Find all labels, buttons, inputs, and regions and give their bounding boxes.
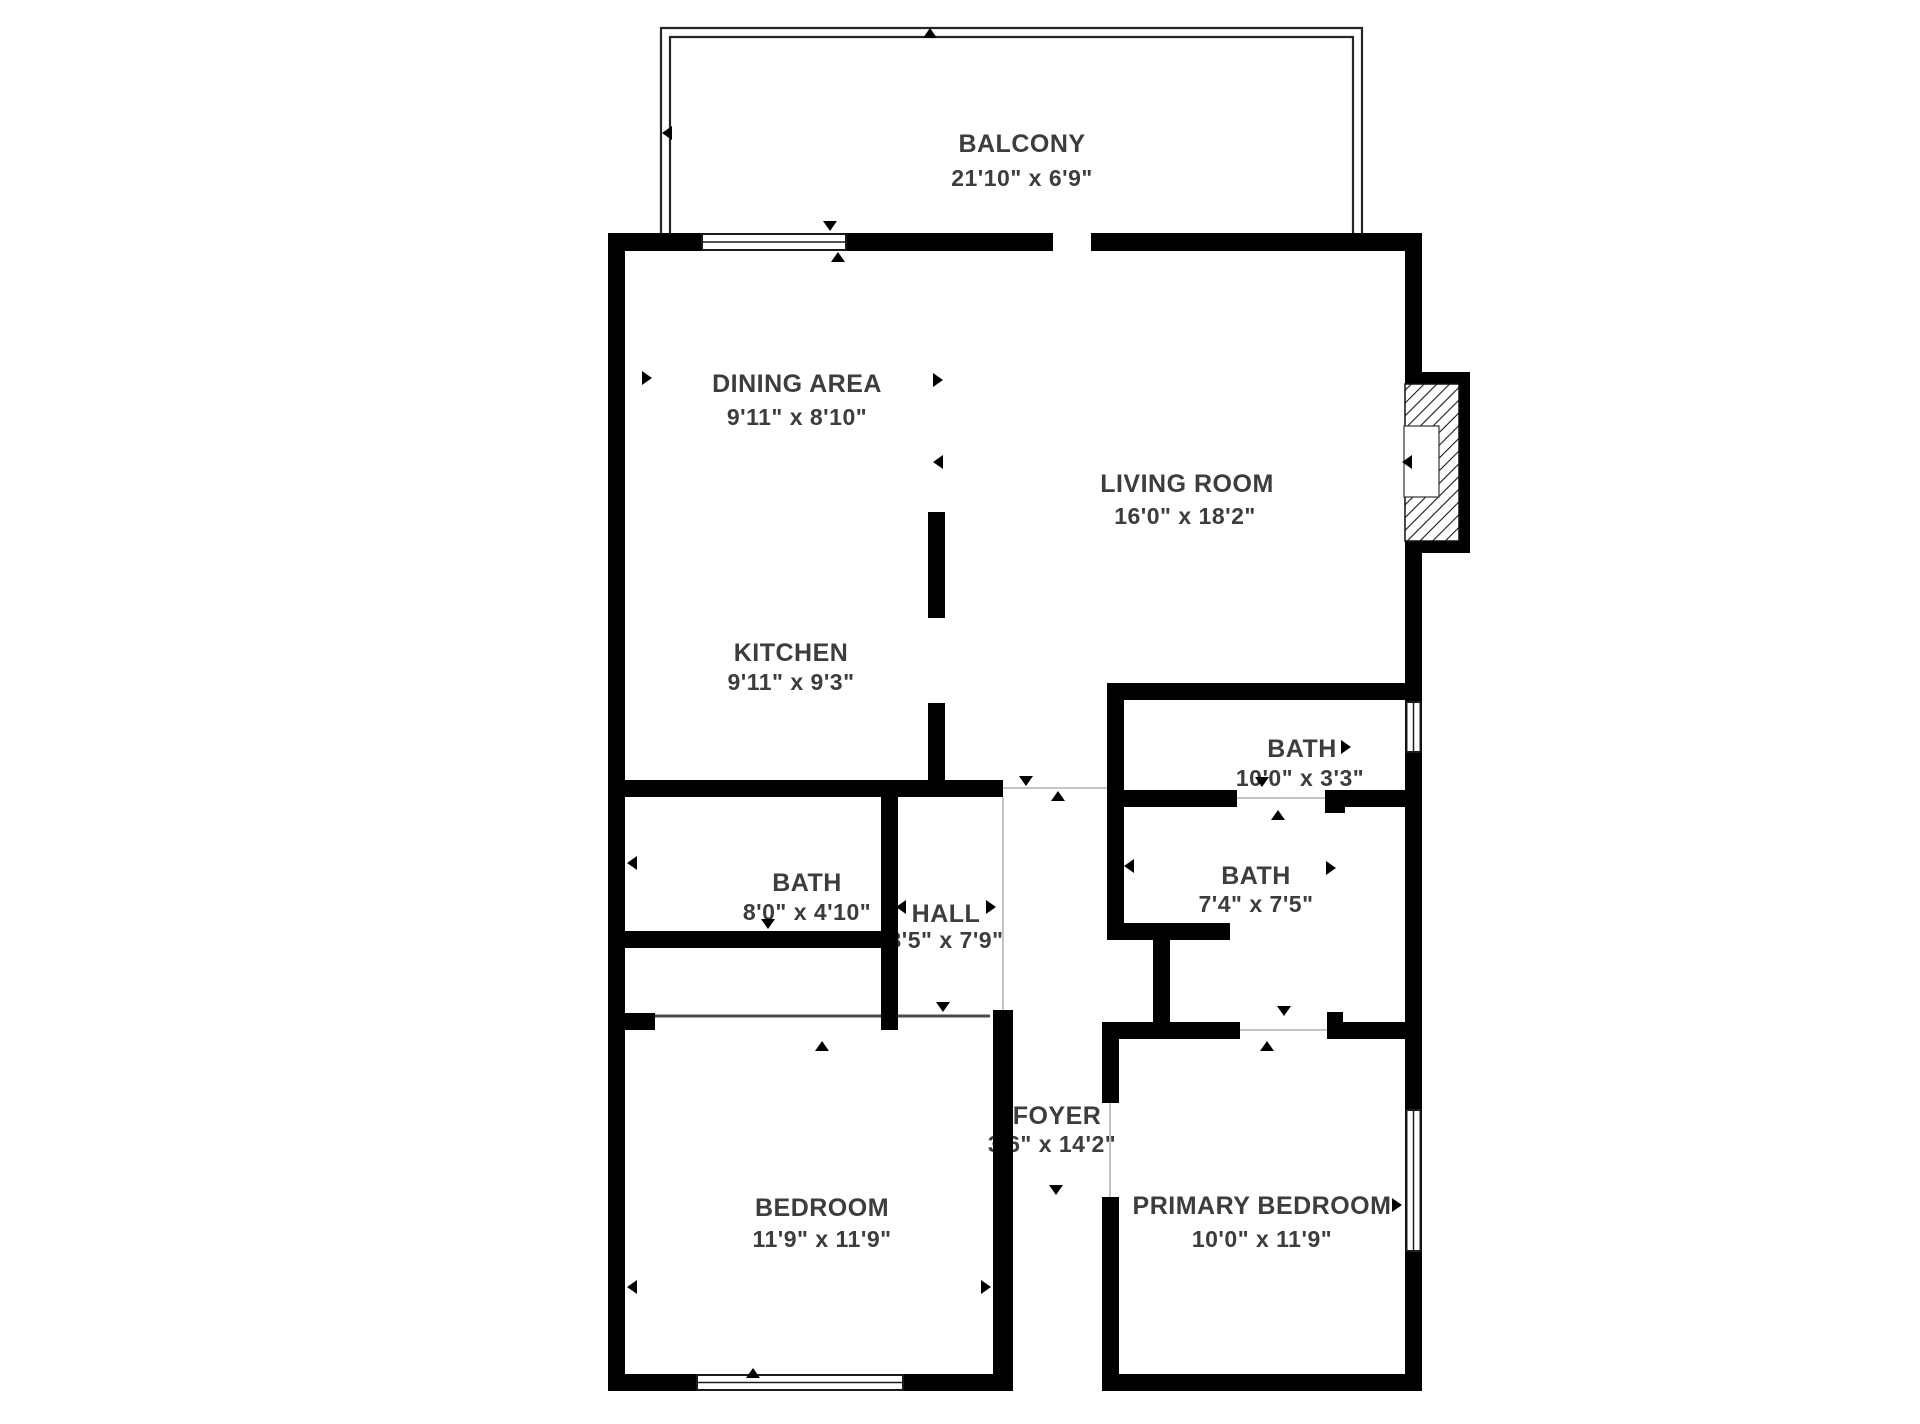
balcony-door-opening	[1053, 230, 1091, 254]
room-label-hall: HALL	[912, 900, 981, 928]
room-dims-balcony: 21'10" x 6'9"	[951, 165, 1093, 191]
chimney-bottom	[1422, 541, 1470, 553]
fireplace	[1404, 384, 1459, 541]
wall-left	[608, 233, 625, 1391]
room-label-living: LIVING ROOM	[1100, 470, 1274, 498]
wall-bath-left-vertical	[1107, 683, 1124, 940]
wall-kitchen-bottom	[625, 780, 1003, 797]
room-dims-dining: 9'11" x 8'10"	[727, 404, 867, 430]
room-label-balcony: BALCONY	[958, 130, 1085, 158]
room-dims-bath-right: 7'4" x 7'5"	[1199, 891, 1314, 917]
room-label-bath-left: BATH	[772, 869, 842, 897]
wall-bedroom-top-stub	[625, 1013, 655, 1030]
floor-plan-page: BALCONY 21'10" x 6'9" DINING AREA 9'11" …	[0, 0, 1920, 1424]
room-dims-living: 16'0" x 18'2"	[1114, 503, 1256, 529]
room-dims-bath-left: 8'0" x 4'10"	[743, 899, 871, 925]
wall-primary-top-jamb	[1327, 1012, 1343, 1039]
window-primary-bedroom	[1407, 1110, 1421, 1251]
opening-tick-markers	[627, 28, 1412, 1378]
room-label-primary-bedroom: PRIMARY BEDROOM	[1133, 1192, 1392, 1220]
floor-plan: BALCONY 21'10" x 6'9" DINING AREA 9'11" …	[0, 0, 1920, 1424]
window-top	[702, 234, 846, 250]
room-label-kitchen: KITCHEN	[734, 639, 849, 667]
wall-living-bottom	[1107, 683, 1422, 700]
room-label-bath-upper: BATH	[1267, 735, 1337, 763]
wall-hall-left	[881, 780, 898, 1030]
room-dims-hall: 3'5" x 7'9"	[889, 927, 1004, 953]
window-bedroom	[697, 1375, 903, 1390]
room-dims-bedroom: 11'9" x 11'9"	[752, 1226, 891, 1252]
window-bath	[1407, 702, 1421, 752]
chimney-outer	[1458, 372, 1470, 553]
wall-foyer-left	[993, 1010, 1013, 1391]
wall-bathleft-bottom	[625, 931, 898, 948]
room-label-bedroom: BEDROOM	[755, 1194, 889, 1222]
wall-bathright-notch-h	[1107, 923, 1230, 940]
wall-primary-top-a	[1107, 1022, 1240, 1039]
room-label-bath-right: BATH	[1221, 862, 1291, 890]
wall-foyer-right-a	[1102, 1022, 1119, 1103]
room-dims-primary-bedroom: 10'0" x 11'9"	[1192, 1226, 1332, 1252]
wall-bottom-primary	[1102, 1374, 1422, 1391]
wall-bathupper-bottom-a	[1107, 790, 1237, 807]
room-label-foyer: FOYER	[1013, 1102, 1102, 1130]
kitchen-door-opening	[925, 618, 948, 703]
room-label-dining: DINING AREA	[712, 370, 882, 398]
room-dims-kitchen: 9'11" x 9'3"	[727, 669, 854, 695]
wall-bathupper-bottom-b	[1329, 790, 1422, 807]
wall-foyer-right-b	[1102, 1197, 1119, 1391]
wall-primary-top-b	[1343, 1022, 1422, 1039]
wall-bathright-notch-v	[1153, 940, 1170, 1030]
room-dims-bath-upper: 10'0" x 3'3"	[1236, 765, 1364, 791]
